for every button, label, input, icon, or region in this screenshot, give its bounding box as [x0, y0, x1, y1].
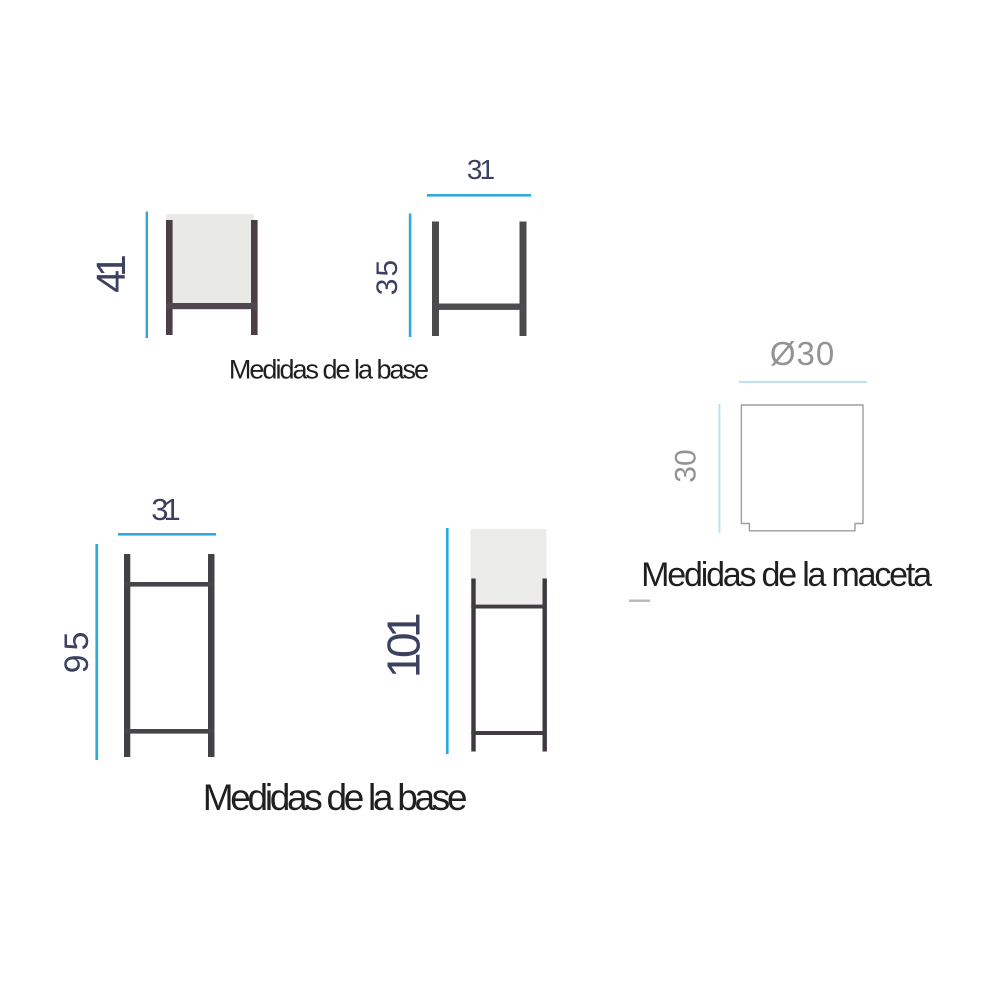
svg-text:41: 41	[88, 256, 134, 293]
svg-text:Medidas de la base: Medidas de la base	[229, 355, 428, 385]
svg-text:95: 95	[58, 628, 96, 674]
svg-text:31: 31	[467, 154, 495, 185]
svg-text:Medidas de la maceta: Medidas de la maceta	[641, 556, 932, 594]
svg-text:Ø30: Ø30	[770, 335, 835, 372]
svg-text:30: 30	[670, 449, 703, 482]
svg-text:101: 101	[378, 614, 430, 678]
svg-text:Medidas de la base: Medidas de la base	[203, 777, 466, 818]
svg-text:31: 31	[151, 492, 179, 527]
svg-text:35: 35	[371, 258, 404, 295]
